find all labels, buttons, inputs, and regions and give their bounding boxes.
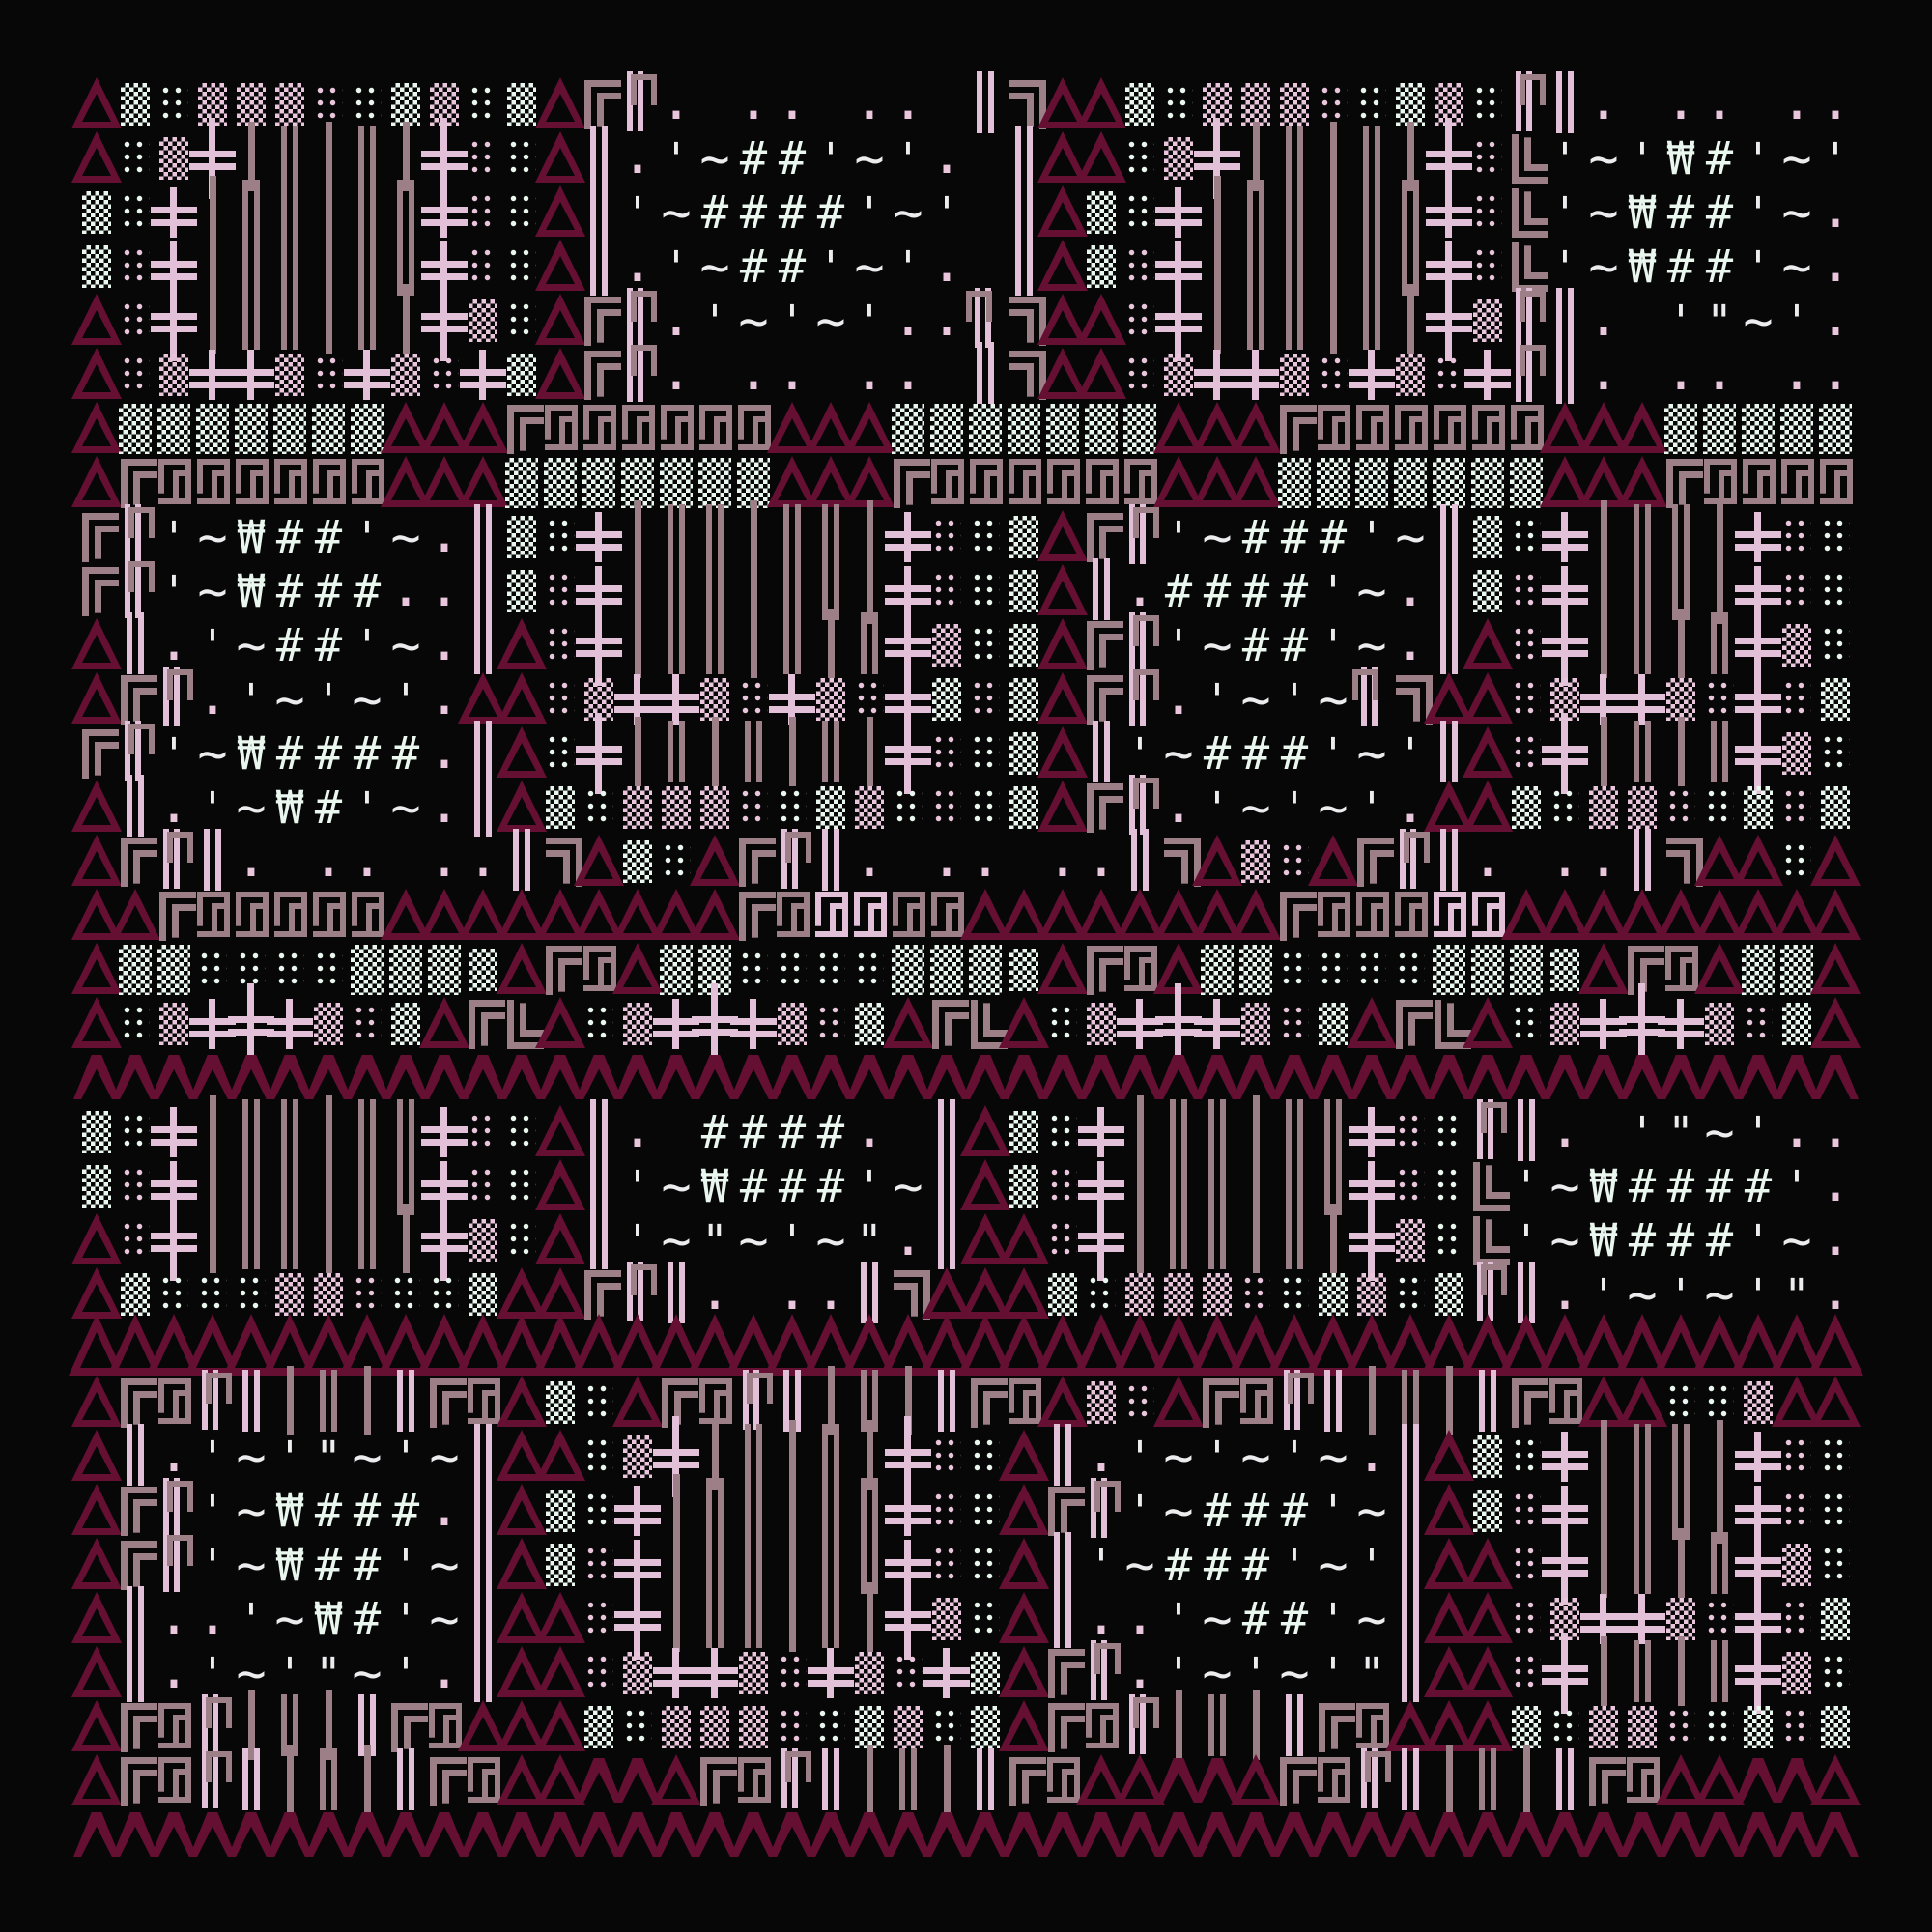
glyph-dot-block-pink-sparse [1391, 1105, 1430, 1159]
glyph-dot-block-pink-sparse [348, 997, 386, 1051]
glyph-chevron [657, 1051, 696, 1105]
glyph-spiral-square [580, 943, 618, 997]
glyph-triangle [502, 1592, 541, 1646]
glyph-won-hash: ₩ [1662, 131, 1700, 185]
glyph-cross-tall [889, 726, 927, 781]
glyph-corner-top-left [1352, 835, 1391, 889]
glyph-won-hash: ₩ [1623, 240, 1662, 294]
glyph-dot-block-pink-dense [927, 1592, 966, 1646]
glyph-spiral-square [1430, 402, 1468, 456]
glyph-dot: . [155, 1646, 193, 1700]
glyph-chevron [1314, 1051, 1352, 1105]
glyph-triangle [502, 1646, 541, 1700]
glyph-won-hash: ₩ [1584, 1213, 1623, 1267]
glyph-vertical-bar [850, 726, 889, 781]
glyph-tilde: ~ [1198, 618, 1236, 672]
glyph-triangle [1159, 1376, 1198, 1430]
glyph-apostrophe: ' [1314, 1484, 1352, 1538]
glyph-triangle-baseline [696, 1321, 734, 1376]
glyph-dot: . [1468, 835, 1507, 889]
glyph-chevron [1777, 1754, 1816, 1808]
glyph-dot-block-mint-sparse [657, 835, 696, 889]
glyph-dot-block-mint-full [116, 943, 155, 997]
glyph-triangle [502, 726, 541, 781]
glyph-apostrophe: ' [1198, 672, 1236, 726]
glyph-vertical-bar [1391, 294, 1430, 348]
glyph-triangle [657, 889, 696, 943]
glyph-triangle-baseline [1198, 1321, 1236, 1376]
glyph-dot-block-pink-sparse [1739, 997, 1777, 1051]
glyph-double-vertical-pink [580, 1105, 618, 1159]
glyph-corner-top-left [1662, 456, 1700, 510]
glyph-corner-top-left [77, 510, 116, 564]
glyph-double-vertical-mauve [734, 726, 773, 781]
glyph-dot-block-mint-sparse [773, 943, 811, 997]
glyph-dot-block-mint-full [1662, 402, 1700, 456]
glyph-triangle-baseline [425, 1321, 464, 1376]
glyph-chevron [386, 1808, 425, 1862]
glyph-apostrophe: ' [1121, 1484, 1159, 1538]
glyph-blank [811, 77, 850, 131]
glyph-double-vertical-mauve [1662, 1430, 1700, 1484]
glyph-vertical-bar [1584, 1538, 1623, 1592]
glyph-double-vertical-mauve [657, 564, 696, 618]
glyph-triangle [502, 1538, 541, 1592]
glyph-hash: # [1236, 726, 1275, 781]
glyph-apostrophe: ' [1352, 1538, 1391, 1592]
glyph-dot-block-pink-sparse [464, 185, 502, 240]
glyph-dot: . [464, 835, 502, 889]
glyph-chevron [618, 1808, 657, 1862]
glyph-double-vertical-mauve [1198, 1700, 1236, 1754]
glyph-double-quote: " [850, 1213, 889, 1267]
glyph-vertical-bar [696, 1430, 734, 1484]
glyph-hash: # [309, 618, 348, 672]
glyph-dot-block-mint-dense [1043, 1267, 1082, 1321]
glyph-dot-block-pink-dense [155, 348, 193, 402]
glyph-double-vertical-mauve [1314, 1105, 1352, 1159]
glyph-dot-block-mint-dense [1468, 1430, 1507, 1484]
glyph-triangle [1005, 1646, 1043, 1700]
glyph-chevron [1739, 1754, 1777, 1808]
glyph-triangle [77, 77, 116, 131]
glyph-dot-block-mint-dense [541, 1484, 580, 1538]
glyph-triangle [502, 672, 541, 726]
glyph-dot-block-pink-sparse [1391, 1159, 1430, 1213]
glyph-cross-tall [889, 1592, 927, 1646]
glyph-dot-block-pink-dense [270, 77, 309, 131]
glyph-blank [1623, 294, 1662, 348]
glyph-triangle [1005, 1267, 1043, 1321]
glyph-cross-tall [1739, 1646, 1777, 1700]
glyph-tilde: ~ [1198, 510, 1236, 564]
glyph-corner-top-left [1082, 672, 1121, 726]
glyph-triangle [541, 1592, 580, 1646]
glyph-cross-tall [232, 997, 270, 1051]
glyph-apostrophe: ' [1275, 1430, 1314, 1484]
glyph-double-vertical-mauve [1352, 294, 1391, 348]
glyph-triangle-baseline [386, 1321, 425, 1376]
glyph-chevron [1391, 1051, 1430, 1105]
glyph-double-bar-box [193, 1700, 232, 1754]
glyph-apostrophe: ' [309, 672, 348, 726]
glyph-triangle [77, 402, 116, 456]
glyph-triangle [1082, 1754, 1121, 1808]
glyph-corner-bottom-left [966, 997, 1005, 1051]
glyph-spiral-square [580, 402, 618, 456]
glyph-chevron [734, 1808, 773, 1862]
glyph-corner-top-left [116, 835, 155, 889]
glyph-double-vertical-mauve [773, 510, 811, 564]
glyph-vertical-bar [734, 618, 773, 672]
glyph-cross [889, 510, 927, 564]
glyph-corner-top-left [889, 456, 927, 510]
glyph-hash: # [348, 1538, 386, 1592]
glyph-triangle [77, 348, 116, 402]
glyph-hash: # [348, 1592, 386, 1646]
glyph-dot-block-pink-dense [464, 1213, 502, 1267]
glyph-vertical-bar [193, 1213, 232, 1267]
glyph-double-vertical-pink [966, 1754, 1005, 1808]
glyph-dot-block-pink-sparse [1121, 1376, 1159, 1430]
glyph-dot: . [1584, 348, 1623, 402]
glyph-spiral-square [1005, 1376, 1043, 1430]
glyph-cross-tall [1546, 618, 1584, 672]
glyph-double-bar-box [1468, 1267, 1507, 1321]
glyph-cross [1662, 997, 1700, 1051]
glyph-spiral-square [309, 889, 348, 943]
glyph-apostrophe: ' [1739, 1213, 1777, 1267]
glyph-double-bar-box [1082, 1484, 1121, 1538]
glyph-triangle [541, 77, 580, 131]
glyph-double-vertical-pink [1546, 1754, 1584, 1808]
glyph-double-vertical-pink [1275, 1700, 1314, 1754]
glyph-chevron [1314, 1808, 1352, 1862]
glyph-hash: # [811, 1105, 850, 1159]
glyph-dot-block-pink-sparse [1777, 781, 1816, 835]
glyph-dot: . [425, 835, 464, 889]
glyph-double-vertical-pink [1430, 726, 1468, 781]
glyph-spiral-square [155, 1700, 193, 1754]
glyph-corner-top-left [116, 1700, 155, 1754]
glyph-triangle [502, 889, 541, 943]
glyph-chevron [502, 1808, 541, 1862]
glyph-dot-block-mint-dense [1468, 1484, 1507, 1538]
glyph-triangle [1468, 672, 1507, 726]
glyph-double-vertical-mauve [1623, 1430, 1662, 1484]
glyph-triangle [1198, 456, 1236, 510]
glyph-dot-block-mint-dense [1314, 1267, 1352, 1321]
glyph-corner-top-left [927, 997, 966, 1051]
glyph-triangle [502, 781, 541, 835]
glyph-vertical-bar [1159, 1700, 1198, 1754]
glyph-apostrophe: ' [1584, 1267, 1623, 1321]
glyph-apostrophe: ' [1314, 1646, 1352, 1700]
glyph-dot-block-pink-dense [1198, 1267, 1236, 1321]
glyph-dot-block-mint-dense [77, 1159, 116, 1213]
glyph-dot-block-pink-dense [657, 1700, 696, 1754]
glyph-chevron [425, 1808, 464, 1862]
glyph-blank [386, 835, 425, 889]
glyph-vertical-bar [1121, 1213, 1159, 1267]
glyph-hash: # [1236, 618, 1275, 672]
glyph-chevron [116, 1051, 155, 1105]
glyph-won-hash: ₩ [270, 1538, 309, 1592]
glyph-double-bar-box [734, 1376, 773, 1430]
glyph-dot: . [734, 77, 773, 131]
glyph-corner-top-right [1005, 77, 1043, 131]
glyph-dot-block-mint-full [1121, 402, 1159, 456]
glyph-cross [270, 997, 309, 1051]
glyph-chevron [889, 1808, 927, 1862]
glyph-triangle-baseline [1043, 1321, 1082, 1376]
glyph-dot-block-mint-full [1314, 456, 1352, 510]
glyph-triangle-baseline [1546, 1321, 1584, 1376]
glyph-hash: # [734, 131, 773, 185]
glyph-vertical-bar [811, 1376, 850, 1430]
glyph-double-vertical-mauve [734, 1538, 773, 1592]
glyph-dot-block-mint-sparse [1546, 1700, 1584, 1754]
glyph-vertical-bar [773, 726, 811, 781]
glyph-hash: # [386, 1484, 425, 1538]
glyph-corner-bottom-left [502, 997, 541, 1051]
glyph-double-vertical-mauve [1352, 131, 1391, 185]
glyph-dot-block-mint-sparse [618, 1700, 657, 1754]
glyph-triangle-baseline [155, 1321, 193, 1376]
glyph-dot-block-mint-dense [966, 1646, 1005, 1700]
glyph-spiral-square [193, 889, 232, 943]
glyph-double-vertical-pink [580, 1159, 618, 1213]
glyph-hash: # [1159, 1538, 1198, 1592]
glyph-triangle [1005, 1213, 1043, 1267]
glyph-triangle-baseline [309, 1321, 348, 1376]
glyph-spiral-square-pink [1430, 889, 1468, 943]
glyph-won-hash: ₩ [270, 1484, 309, 1538]
glyph-dot-block-pink-sparse [1043, 1213, 1082, 1267]
glyph-double-vertical-mauve [1623, 618, 1662, 672]
glyph-triangle-baseline [927, 1321, 966, 1376]
glyph-dot-block-pink-dense [270, 1267, 309, 1321]
glyph-dot-block-mint-sparse [1275, 1267, 1314, 1321]
glyph-cross-tall [1739, 618, 1777, 672]
glyph-dot-block-pink-sparse [734, 672, 773, 726]
glyph-spiral-square [1121, 456, 1159, 510]
glyph-triangle-baseline [773, 1321, 811, 1376]
glyph-dot-block-pink-dense [618, 1430, 657, 1484]
glyph-cross [1430, 185, 1468, 240]
glyph-corner-top-left [1275, 402, 1314, 456]
glyph-double-vertical-mauve [1623, 1484, 1662, 1538]
glyph-chevron [1082, 1051, 1121, 1105]
glyph-dot-block-pink-dense [1121, 1267, 1159, 1321]
glyph-chevron [1391, 1808, 1430, 1862]
glyph-double-vertical-pink [1468, 1376, 1507, 1430]
glyph-dot-block-pink-sparse [1275, 997, 1314, 1051]
glyph-triangle [1043, 185, 1082, 240]
glyph-double-quote: " [1777, 1267, 1816, 1321]
glyph-dot-block-mint-full [1739, 943, 1777, 997]
glyph-dot: . [1777, 77, 1816, 131]
glyph-dot-block-mint-sparse [116, 131, 155, 185]
glyph-double-vertical-mauve [1623, 1538, 1662, 1592]
glyph-cross [657, 1646, 696, 1700]
glyph-double-vertical-pink [464, 1484, 502, 1538]
glyph-apostrophe: ' [1739, 1267, 1777, 1321]
glyph-dot: . [1662, 77, 1700, 131]
glyph-dot-block-mint-dense [1082, 240, 1121, 294]
glyph-corner-top-right [1159, 835, 1198, 889]
glyph-apostrophe: ' [1739, 1105, 1777, 1159]
glyph-triangle [1623, 1376, 1662, 1430]
glyph-double-bar-box [193, 1376, 232, 1430]
glyph-dot: . [889, 348, 927, 402]
glyph-triangle [1816, 835, 1855, 889]
glyph-hash: # [773, 1159, 811, 1213]
glyph-dot-block-pink-sparse [927, 1484, 966, 1538]
glyph-blank [696, 348, 734, 402]
glyph-blank [927, 348, 966, 402]
glyph-double-vertical-mauve [1236, 185, 1275, 240]
glyph-dot-block-mint-sparse [1700, 1700, 1739, 1754]
glyph-cross [657, 997, 696, 1051]
glyph-dot: . [657, 77, 696, 131]
glyph-hash: # [1275, 510, 1314, 564]
glyph-blank [1623, 77, 1662, 131]
glyph-hash: # [1236, 1592, 1275, 1646]
glyph-dot-block-mint-dense [1121, 77, 1159, 131]
glyph-dot-block-mint-full [270, 402, 309, 456]
glyph-hash: # [1275, 618, 1314, 672]
glyph-hash: # [1275, 726, 1314, 781]
glyph-dot: . [811, 1267, 850, 1321]
glyph-triangle [1043, 510, 1082, 564]
glyph-corner-top-left [77, 564, 116, 618]
glyph-chevron [1159, 1051, 1198, 1105]
glyph-double-bar-box [1082, 1646, 1121, 1700]
glyph-triangle [1777, 1376, 1816, 1430]
glyph-dot-block-mint-dense [116, 77, 155, 131]
glyph-corner-top-left [966, 1376, 1005, 1430]
glyph-cross [348, 348, 386, 402]
glyph-triangle [502, 943, 541, 997]
glyph-cross [1623, 672, 1662, 726]
glyph-dot-block-pink-sparse [773, 1646, 811, 1700]
glyph-vertical-bar [232, 1700, 270, 1754]
glyph-chevron [580, 1808, 618, 1862]
glyph-triangle [541, 131, 580, 185]
glyph-dot-block-pink-sparse [927, 510, 966, 564]
glyph-dot-block-mint-sparse [1816, 564, 1855, 618]
glyph-vertical-bar [1198, 294, 1236, 348]
glyph-triangle [1314, 835, 1352, 889]
glyph-spiral-square [464, 1754, 502, 1808]
glyph-dot-block-mint-full [541, 456, 580, 510]
ascii-art-canvas: ...........'~##'~'.'~'₩#'~''~####'~''~₩#… [0, 0, 1932, 1932]
glyph-corner-top-left [1198, 1376, 1236, 1430]
glyph-dot-block-pink-sparse [425, 348, 464, 402]
glyph-triangle [464, 889, 502, 943]
glyph-dot-block-mint-sparse [502, 131, 541, 185]
glyph-double-vertical-pink [1005, 131, 1043, 185]
glyph-dot-block-mint-full [1430, 943, 1468, 997]
glyph-triangle [1468, 1538, 1507, 1592]
glyph-dot-block-mint-sparse [966, 510, 1005, 564]
glyph-tilde: ~ [1275, 1646, 1314, 1700]
glyph-dot-block-pink-sparse [464, 240, 502, 294]
glyph-hash: # [1662, 240, 1700, 294]
glyph-chevron [734, 1051, 773, 1105]
glyph-double-vertical-mauve [232, 294, 270, 348]
glyph-chevron [1430, 1051, 1468, 1105]
glyph-dot-block-mint-dense [1816, 1700, 1855, 1754]
glyph-corner-top-left [1275, 1754, 1314, 1808]
glyph-dot-block-mint-sparse [116, 1105, 155, 1159]
glyph-triangle [966, 1159, 1005, 1213]
glyph-dot-block-mint-sparse [1352, 943, 1391, 997]
glyph-dot-block-mint-full [966, 943, 1005, 997]
glyph-triangle [1623, 402, 1662, 456]
glyph-double-vertical-pink [1430, 510, 1468, 564]
glyph-dot: . [966, 835, 1005, 889]
glyph-double-vertical-mauve [232, 185, 270, 240]
glyph-corner-bottom-left [1468, 1159, 1507, 1213]
glyph-cross [1159, 185, 1198, 240]
glyph-tilde: ~ [657, 185, 696, 240]
glyph-double-vertical-pink [1546, 348, 1584, 402]
glyph-dot-block-pink-dense [1352, 1267, 1391, 1321]
glyph-double-vertical-pink [1507, 1105, 1546, 1159]
glyph-dot: . [1546, 1105, 1584, 1159]
glyph-tilde: ~ [270, 1592, 309, 1646]
glyph-dot-block-pink-dense [1739, 1376, 1777, 1430]
glyph-apostrophe: ' [193, 1430, 232, 1484]
glyph-double-vertical-pink [1391, 1592, 1430, 1646]
glyph-corner-top-left [580, 294, 618, 348]
glyph-triangle-baseline [1623, 1321, 1662, 1376]
glyph-tilde: ~ [232, 1430, 270, 1484]
glyph-apostrophe: ' [386, 1646, 425, 1700]
glyph-dot-block-pink-sparse [116, 294, 155, 348]
glyph-chevron [1043, 1051, 1082, 1105]
glyph-vertical-bar [773, 1592, 811, 1646]
glyph-apostrophe: ' [232, 1592, 270, 1646]
glyph-dot: . [1816, 77, 1855, 131]
glyph-double-vertical-pink [1546, 77, 1584, 131]
glyph-corner-top-left [1275, 889, 1314, 943]
glyph-apostrophe: ' [193, 781, 232, 835]
glyph-hash: # [270, 726, 309, 781]
glyph-corner-top-left [580, 348, 618, 402]
glyph-double-vertical-pink [1623, 835, 1662, 889]
glyph-double-vertical-pink [1121, 835, 1159, 889]
glyph-apostrophe: ' [1546, 240, 1584, 294]
glyph-triangle [502, 1430, 541, 1484]
ascii-art-grid: ...........'~##'~'.'~'₩#'~''~####'~''~₩#… [77, 77, 1855, 1862]
glyph-triangle [1584, 402, 1623, 456]
glyph-double-vertical-mauve [889, 1754, 927, 1808]
glyph-corner-top-left [1043, 1484, 1082, 1538]
glyph-chevron [1352, 1051, 1391, 1105]
glyph-triangle [1662, 1754, 1700, 1808]
glyph-apostrophe: ' [270, 1430, 309, 1484]
glyph-triangle [1043, 1376, 1082, 1430]
glyph-dot-block-pink-dense [1777, 618, 1816, 672]
glyph-spiral-square [1043, 1754, 1082, 1808]
glyph-dot-block-mint-full [348, 402, 386, 456]
glyph-dot-block-pink-dense [1777, 1538, 1816, 1592]
glyph-vertical-bar [1584, 726, 1623, 781]
glyph-tilde: ~ [696, 131, 734, 185]
